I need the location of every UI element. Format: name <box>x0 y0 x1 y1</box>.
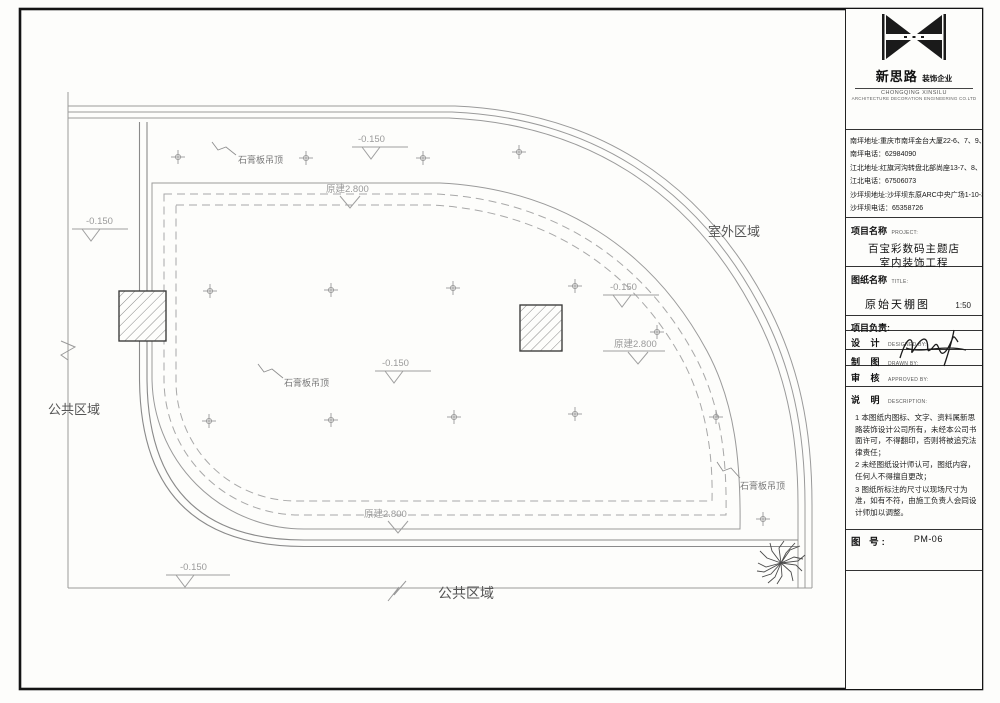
drawing-sheet: -0.150 -0.150 -0.150 -0.150 -0.150 原建2.8… <box>0 0 1000 703</box>
level-text: -0.150 <box>86 216 113 227</box>
company-logo-icon <box>879 13 949 61</box>
sheet-title-label: 图纸名称 <box>851 275 887 285</box>
level-text: -0.150 <box>382 358 409 369</box>
project-label-en: PROJECT: <box>891 230 918 236</box>
sheet-title-section: 图纸名称 TITLE: 原始天棚图 1:50 <box>846 267 982 316</box>
sheet-border <box>20 9 982 689</box>
description-label: 说 明 <box>851 395 884 405</box>
address-line: 江北电话：67506073 <box>850 175 978 188</box>
sheet-title-label-en: TITLE: <box>891 279 908 285</box>
public-area-label: 公共区域 <box>438 585 494 601</box>
sheet-scale: 1:50 <box>955 301 971 310</box>
sheet-number-label: 图 号: <box>851 534 888 548</box>
gypsum-ceiling-label: 石膏板吊顶 <box>238 154 283 165</box>
confirmation-area: 同意并确认按照本设计方案施工。 甲方签字确认： 乙方签字确认： 日 期： 年 月… <box>846 571 982 689</box>
public-area-label: 公共区域 <box>48 402 100 417</box>
company-suffix: 装饰企业 <box>922 74 952 83</box>
height-text: 原建2.800 <box>364 508 407 520</box>
project-name-line1: 百宝彩数码主题店 <box>851 243 977 257</box>
designed-by-row: 设 计 DESIGNED BY: <box>846 331 982 350</box>
note-item: 2 未经图纸设计师认可，图纸内容，任何人不得擅自更改； <box>855 459 977 482</box>
company-name-en2: ARCHITECTURE DECORATION ENGINEERING CO.L… <box>846 96 982 101</box>
address-line: 南坪电话：62984090 <box>850 148 978 161</box>
approved-by-row: 审 核 APPROVED BY: <box>846 366 982 387</box>
gypsum-ceiling-label: 石膏板吊顶 <box>740 480 785 491</box>
sheet-title: 原始天棚图 <box>865 296 930 312</box>
company-logo-section: 新思路 装饰企业 CHONGQING XINSILU ARCHITECTURE … <box>846 9 982 130</box>
check-label: 审 核 <box>851 373 884 383</box>
project-label: 项目名称 <box>851 226 887 236</box>
company-name: 新思路 <box>876 69 918 84</box>
description-label-en: DESCRIPTION: <box>888 399 927 405</box>
gypsum-ceiling-label: 石膏板吊顶 <box>284 377 329 388</box>
note-item: 1 本图纸内图标、文字、资料属新思路装饰设计公司所有，未经本公司书面许可，不得翻… <box>855 412 977 458</box>
project-lead-row: 项目负责: <box>846 316 982 331</box>
height-text: 原建2.800 <box>614 338 657 350</box>
address-line: 南坪地址:重庆市南坪金台大厦22-6、7、9、10 <box>850 135 978 148</box>
note-item: 3 图纸所标注的尺寸以现场尺寸为准，如有不符，由施工负责人会同设计师加以调整。 <box>855 484 977 519</box>
column <box>119 291 166 341</box>
description-section: 说 明 DESCRIPTION: 1 本图纸内图标、文字、资料属新思路装饰设计公… <box>846 387 982 530</box>
level-text: -0.150 <box>358 134 385 145</box>
check-label-en: APPROVED BY: <box>888 377 929 383</box>
sheet-number-value: PM-06 <box>914 534 943 544</box>
design-label: 设 计 <box>851 338 884 348</box>
company-address-section: 南坪地址:重庆市南坪金台大厦22-6、7、9、10 南坪电话：62984090 … <box>846 130 982 218</box>
address-line: 沙坪坝电话：65358726 <box>850 202 978 215</box>
address-line: 江北地址:红旗河沟转盘北部尚座13-7、8、9 <box>850 162 978 175</box>
title-block: 新思路 装饰企业 CHONGQING XINSILU ARCHITECTURE … <box>845 9 982 689</box>
height-text: 原建2.800 <box>326 183 369 195</box>
project-name-section: 项目名称 PROJECT: 百宝彩数码主题店 室内装饰工程 <box>846 218 982 267</box>
logo-divider <box>855 88 973 89</box>
design-label-en: DESIGNED BY: <box>888 342 927 348</box>
column <box>520 305 562 351</box>
address-line: 沙坪坝地址:沙坪坝东原ARC中央广场1-10-3 <box>850 189 978 202</box>
sheet-number-row: 图 号: PM-06 <box>846 530 982 571</box>
level-text: -0.150 <box>610 282 637 293</box>
drawn-by-row: 制 图 DRAWN BY: <box>846 350 982 366</box>
outdoor-area-label: 室外区域 <box>708 224 760 239</box>
level-text: -0.150 <box>180 562 207 573</box>
